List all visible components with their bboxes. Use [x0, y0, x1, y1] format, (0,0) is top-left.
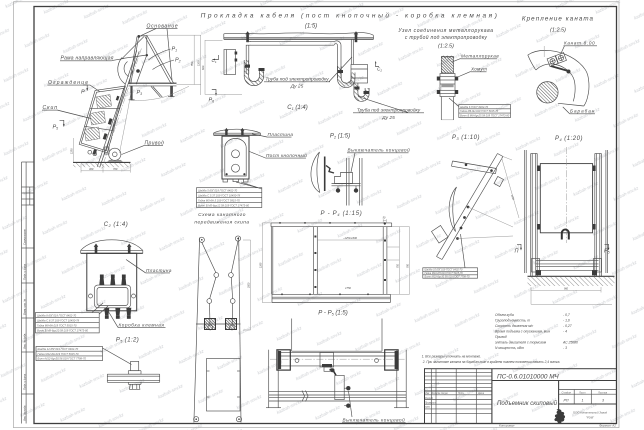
svg-text:Болт М12-6gх30.58.019 ГОСТ 779: Болт М12-6gх30.58.019 ГОСТ 7798-70	[38, 357, 87, 361]
svg-text:N мощность, кВт: N мощность, кВт	[495, 346, 524, 350]
svg-text:1: 1	[582, 399, 584, 403]
svg-text:Стадия: Стадия	[562, 391, 572, 394]
svg-text:Изм: Изм	[425, 393, 430, 395]
svg-text:Инв. № дубл.: Инв. № дубл.	[23, 333, 27, 349]
svg-text:Привод: Привод	[495, 335, 507, 339]
svg-text:Коробка клемная: Коробка клемная	[119, 323, 165, 328]
svg-text:Лист: Лист	[578, 391, 585, 394]
svg-text:Грузоподъемность, т: Грузоподъемность, т	[495, 318, 530, 322]
svg-text:(1:2.5): (1:2.5)	[438, 44, 454, 50]
svg-text:Выключатель концевой: Выключатель концевой	[348, 147, 411, 153]
svg-text:РП: РП	[564, 399, 569, 403]
svg-text:960: 960	[564, 287, 569, 290]
svg-text:Подп. и дата: Подп. и дата	[23, 263, 27, 280]
svg-text:(1:2.5): (1:2.5)	[550, 27, 566, 33]
svg-text:П: П	[515, 249, 519, 255]
svg-text:- 1,0: - 1,0	[563, 318, 570, 322]
svg-text:Р2 (1:5): Р2 (1:5)	[330, 134, 350, 140]
svg-text:Проверил: Проверил	[425, 403, 436, 405]
svg-text:АС 25080: АС 25080	[562, 340, 578, 344]
svg-text:Подъемник скиповый: Подъемник скиповый	[497, 400, 558, 407]
svg-text:Крепление каната: Крепление каната	[522, 15, 594, 22]
svg-text:600: 600	[201, 65, 205, 70]
svg-text:передвижения скипа: передвижения скипа	[194, 219, 249, 225]
svg-text:эл/таль двигателя с тормозом: эл/таль двигателя с тормозом	[495, 340, 547, 344]
svg-text:с трубой под электропроводку: с трубой под электропроводку	[405, 34, 488, 41]
svg-text:(1:5): (1:5)	[305, 24, 317, 30]
svg-text:Шайба С.5.37.019 ГОСТ 10450-78: Шайба С.5.37.019 ГОСТ 10450-78	[198, 194, 241, 198]
svg-text:Инв. № подл.: Инв. № подл.	[23, 405, 27, 421]
svg-text:Шайба 5.65Г.019 ГОСТ 6402-70: Шайба 5.65Г.019 ГОСТ 6402-70	[198, 189, 238, 193]
svg-text:Время подъема с опусканием, ми: Время подъема с опусканием, мин	[495, 329, 550, 333]
svg-text:Канат 8.00: Канат 8.00	[564, 41, 595, 46]
svg-text:Металлорукав: Металлорукав	[461, 54, 499, 59]
svg-text:~1250-1600: ~1250-1600	[343, 236, 357, 240]
svg-text:"РЭФ": "РЭФ"	[586, 416, 595, 420]
svg-text:Листов: Листов	[597, 391, 608, 394]
svg-text:Р - Р4 (1:15): Р - Р4 (1:15)	[321, 211, 363, 217]
svg-text:ПС-0.6.01010000 МЧ: ПС-0.6.01010000 МЧ	[497, 374, 559, 381]
svg-text:Гайка М12-6Н.019 ГОСТ 5915-70: Гайка М12-6Н.019 ГОСТ 5915-70	[38, 352, 79, 356]
svg-text:Винт В.М5-6gх12.58.019 ГОСТ 17: Винт В.М5-6gх12.58.019 ГОСТ 17473-80	[198, 204, 250, 208]
svg-text:Гайка М6-6Н.019 ГОСТ 5915-70: Гайка М6-6Н.019 ГОСТ 5915-70	[460, 109, 499, 113]
svg-text:Узел соединения металлорукава: Узел соединения металлорукава	[398, 28, 493, 34]
svg-text:1150: 1150	[69, 148, 73, 154]
svg-text:Разраб.: Разраб.	[425, 398, 434, 400]
svg-text:1. Все размеры уточнить на мон: 1. Все размеры уточнить на монтаже.	[422, 354, 482, 358]
svg-text:1265: 1265	[259, 262, 262, 268]
svg-text:1750: 1750	[345, 286, 351, 290]
svg-text:Винт В.М6-6gх25.58.019 ГОСТ 17: Винт В.М6-6gх25.58.019 ГОСТ 17473-80	[460, 114, 510, 118]
svg-text:С2 (1:4): С2 (1:4)	[104, 222, 128, 228]
svg-text:Дата: Дата	[477, 393, 485, 395]
svg-text:1100: 1100	[197, 60, 201, 66]
svg-text:850: 850	[190, 61, 194, 66]
svg-text:Барабан: Барабан	[570, 109, 595, 114]
svg-text:- 0,27: - 0,27	[563, 324, 572, 328]
svg-text:Гайка М5-6Н.5.019 ГОСТ 5915-70: Гайка М5-6Н.5.019 ГОСТ 5915-70	[198, 199, 240, 203]
svg-text:Прокладка кабеля (пост кнопочн: Прокладка кабеля (пост кнопочный - короб…	[201, 12, 500, 20]
svg-text:Формат А2: Формат А2	[599, 424, 616, 428]
svg-text:ООО Копательный Завод: ООО Копательный Завод	[573, 411, 608, 415]
svg-text:300: 300	[89, 167, 94, 171]
svg-text:Шайба С.8.37.019 ГОСТ 10450-78: Шайба С.8.37.019 ГОСТ 10450-78	[37, 319, 80, 323]
svg-text:- 3: - 3	[563, 346, 567, 350]
svg-text:ГИП: ГИП	[425, 407, 430, 409]
svg-text:Ду 25: Ду 25	[381, 115, 395, 121]
svg-text:760: 760	[407, 263, 410, 268]
svg-text:Взам. инв. №: Взам. инв. №	[23, 299, 27, 315]
svg-text:2. При заготовке каната на бар: 2. При заготовке каната на барабан скип …	[422, 360, 561, 364]
svg-text:700: 700	[113, 167, 118, 171]
svg-text:Пластина: Пластина	[146, 268, 172, 273]
svg-text:Подп. и дата: Подп. и дата	[23, 373, 27, 390]
svg-text:- 4: - 4	[563, 329, 567, 333]
svg-text:2000: 2000	[248, 282, 251, 289]
svg-text:Винт В.М8-6gх20.58.019 ГОСТ 17: Винт В.М8-6gх20.58.019 ГОСТ 17473-80	[37, 329, 89, 333]
svg-text:Согласовано: Согласовано	[23, 229, 27, 245]
svg-text:Шайба 12.65Г.019 ГОСТ 6402-70: Шайба 12.65Г.019 ГОСТ 6402-70	[38, 347, 79, 351]
svg-text:Р3 (1:10): Р3 (1:10)	[452, 135, 480, 141]
svg-text:Скорость движения м/с: Скорость движения м/с	[495, 324, 533, 328]
svg-text:Гайка М8-6Н.019 ГОСТ 5915-70: Гайка М8-6Н.019 ГОСТ 5915-70	[37, 324, 77, 328]
svg-text:Р - Р5 (1:5): Р - Р5 (1:5)	[318, 311, 347, 317]
svg-text:3: 3	[602, 399, 604, 403]
svg-text:Болт М10-6gх30.58.019 ГОСТ 779: Болт М10-6gх30.58.019 ГОСТ 7798-70	[425, 276, 471, 279]
svg-text:Р4 (1:20): Р4 (1:20)	[555, 136, 583, 142]
svg-text:Р5 (1:2): Р5 (1:2)	[116, 338, 139, 344]
svg-text:- 0,7: - 0,7	[563, 313, 570, 317]
svg-text:Ду 25: Ду 25	[290, 84, 304, 90]
svg-text:Объем куба: Объем куба	[495, 313, 514, 317]
svg-text:№ докум.: № докум.	[438, 392, 448, 395]
svg-text:Пост кнопочный: Пост кнопочный	[266, 152, 307, 158]
svg-text:Шайба 6 ГОСТ 6402-70: Шайба 6 ГОСТ 6402-70	[460, 105, 489, 109]
svg-text:P: P	[81, 90, 85, 96]
svg-text:Схема канатного: Схема канатного	[198, 212, 246, 218]
svg-text:Пластина: Пластина	[268, 132, 294, 137]
svg-text:Шайба 8.65Г.019 ГОСТ 6402-70: Шайба 8.65Г.019 ГОСТ 6402-70	[37, 313, 77, 317]
svg-text:Хомут: Хомут	[470, 67, 487, 72]
svg-text:700: 700	[397, 263, 400, 268]
svg-text:Выключатель концевой: Выключатель концевой	[343, 417, 406, 423]
svg-text:С1 (1:4): С1 (1:4)	[287, 105, 307, 111]
svg-text:Подп.: Подп.	[458, 392, 464, 395]
svg-text:Копировал: Копировал	[499, 424, 515, 428]
